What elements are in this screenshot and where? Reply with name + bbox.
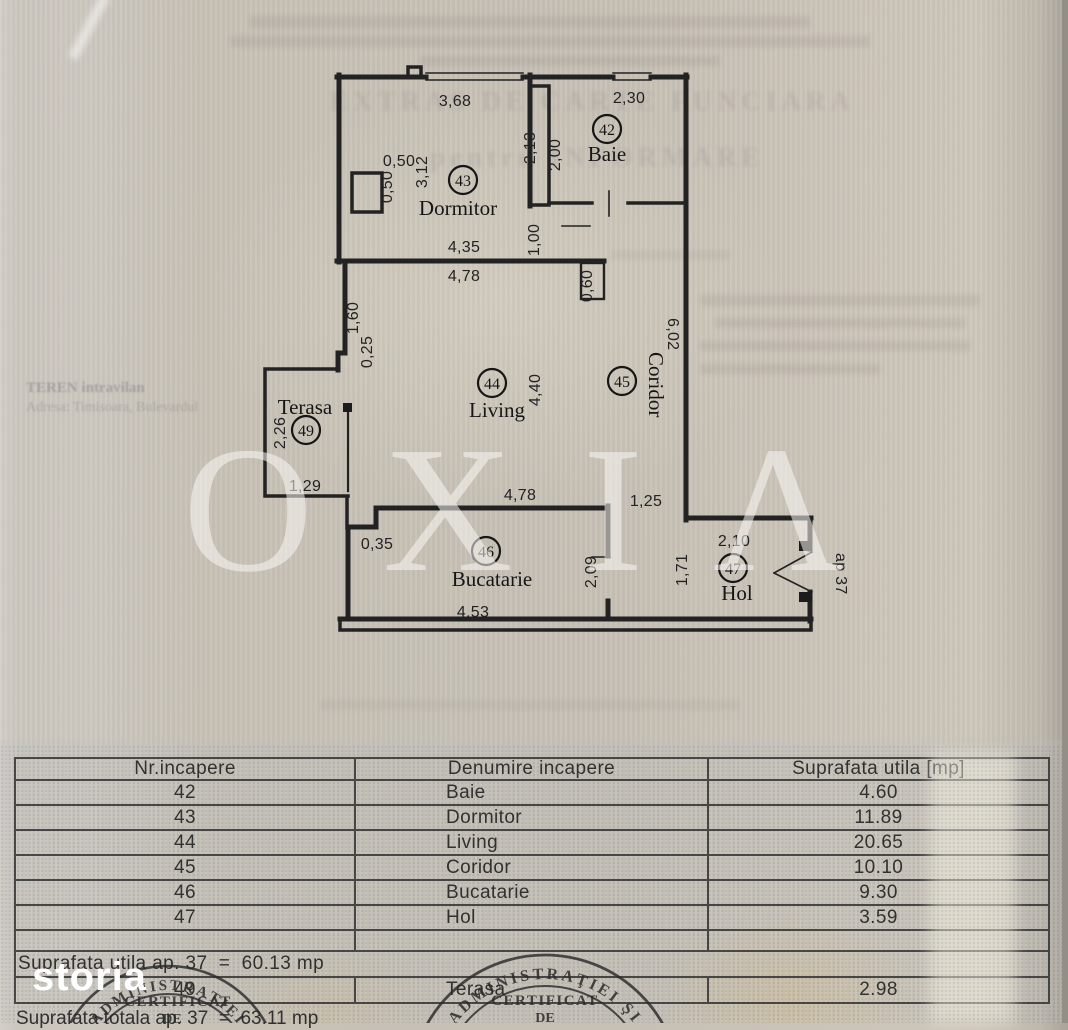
room-hol: 47 Hol [719,554,753,605]
room-number: 46 [478,544,494,561]
room-name: Baie [588,142,626,166]
dim-dormitor-height: 3,12 [414,156,431,188]
dim-living-height: 4,40 [527,374,544,406]
dim-kitchen-jog: 0,35 [361,536,393,553]
dormitor-column [352,173,382,212]
table-row: 47 Hol 3.59 [14,906,1050,931]
cell-nr: 43 [16,806,356,829]
table-row-terasa: 49 Terasa 2.98 [14,978,1050,1004]
summary-utila: Suprafata utila ap. 37 = 60.13 mp [14,952,1050,978]
door-notches [343,403,812,602]
cell-name: Bucatarie [356,881,709,904]
room-name: Hol [721,581,753,605]
dim-hol-height: 1,71 [674,554,691,586]
cell-name: Living [356,831,709,854]
scanned-floorplan-document: { "watermark": { "text": "OXIΛ", "brand"… [0,0,1068,1023]
table-header-row: Nr.incapere Denumire incapere Suprafata … [14,757,1050,781]
cell-nr: 47 [16,906,356,929]
dim-shaft-height: 2,13 [522,132,539,164]
dim-kitchen-height: 2,09 [583,556,600,588]
room-name: Coridor [644,352,668,417]
dim-living-left-upper: 1,60 [345,302,362,334]
room-coridor: 45 Coridor [608,352,668,417]
cell-nr: 42 [16,781,356,804]
floor-plan-drawing: 3,68 2,30 0,50 4,35 4,78 1,29 4,78 1,25 … [0,0,1068,760]
cell-name: Coridor [356,856,709,879]
stamp-de: DE [535,1011,554,1023]
dim-wall-stub: 0,60 [579,270,596,302]
room-number: 44 [484,376,500,393]
room-number: 43 [455,173,471,190]
header-nr-incapere: Nr.incapere [16,759,356,779]
room-number: 49 [298,423,314,440]
dim-living-left-jog: 0,25 [359,336,376,368]
dim-living-width: 4,78 [504,487,536,504]
dim-terasa-width: 1,29 [289,478,321,495]
cell-area: 2.98 [709,978,1048,1002]
dim-dormitor-width-in: 4,35 [448,239,480,256]
dim-baie-top: 2,30 [613,90,645,107]
cell-area: 20.65 [709,831,1048,854]
cell-nr: 44 [16,831,356,854]
room-name: Terasa [278,395,333,419]
dim-hol-width: 2,10 [718,533,750,550]
table-row: 45 Coridor 10.10 [14,856,1050,881]
dim-coridor-gap: 1,25 [630,493,662,510]
dimension-labels: 3,68 2,30 0,50 4,35 4,78 1,29 4,78 1,25 … [272,90,849,621]
dim-dormitor-door: 1,00 [526,224,543,256]
cell-area: 4.60 [709,781,1048,804]
table-row: 42 Baie 4.60 [14,781,1050,806]
header-denumire: Denumire incapere [356,759,709,779]
dim-coridor-length: 6,02 [664,318,681,350]
cell-name: Hol [356,906,709,929]
dim-terasa-height: 2,26 [272,417,289,449]
table-empty-row [14,931,1050,952]
room-number: 42 [599,122,615,139]
cell-nr: 46 [16,881,356,904]
room-name: Bucatarie [452,567,532,591]
room-number: 47 [725,561,741,578]
room-living: 44 Living [469,369,525,422]
room-bucatarie: 46 Bucatarie [452,537,532,591]
header-suprafata: Suprafata utila [mp] [709,759,1048,779]
table-row: 46 Bucatarie 9.30 [14,881,1050,906]
cell-area: 3.59 [709,906,1048,929]
summary-totala: Suprafata totala ap. 37 = 63.11 mp [16,1008,318,1030]
dim-column-top: 0,50 [383,153,415,170]
entrance-label-ap37: ap 37 [832,553,849,595]
dim-column-side: 0,50 [379,171,396,203]
cell-name: Baie [356,781,709,804]
room-number: 45 [614,374,630,391]
dim-kitchen-width: 4,53 [457,604,489,621]
room-name: Dormitor [419,196,497,220]
table-row: 43 Dormitor 11.89 [14,806,1050,831]
cell-area: 9.30 [709,881,1048,904]
scan-right-edge [1062,0,1068,1023]
table-row: 44 Living 20.65 [14,831,1050,856]
cell-name: Terasa [356,978,709,1002]
room-baie: 42 Baie [588,115,626,166]
dim-dormitor-width-out: 4,78 [448,268,480,285]
area-table: Nr.incapere Denumire incapere Suprafata … [14,757,1050,1004]
dim-baie-left: 2,00 [547,139,564,171]
cell-area: 11.89 [709,806,1048,829]
dim-dormitor-top: 3,68 [439,93,471,110]
cell-nr: 45 [16,856,356,879]
room-name: Living [469,398,525,422]
cell-area: 10.10 [709,856,1048,879]
cell-name: Dormitor [356,806,709,829]
storia-logo: storia [32,955,147,1000]
